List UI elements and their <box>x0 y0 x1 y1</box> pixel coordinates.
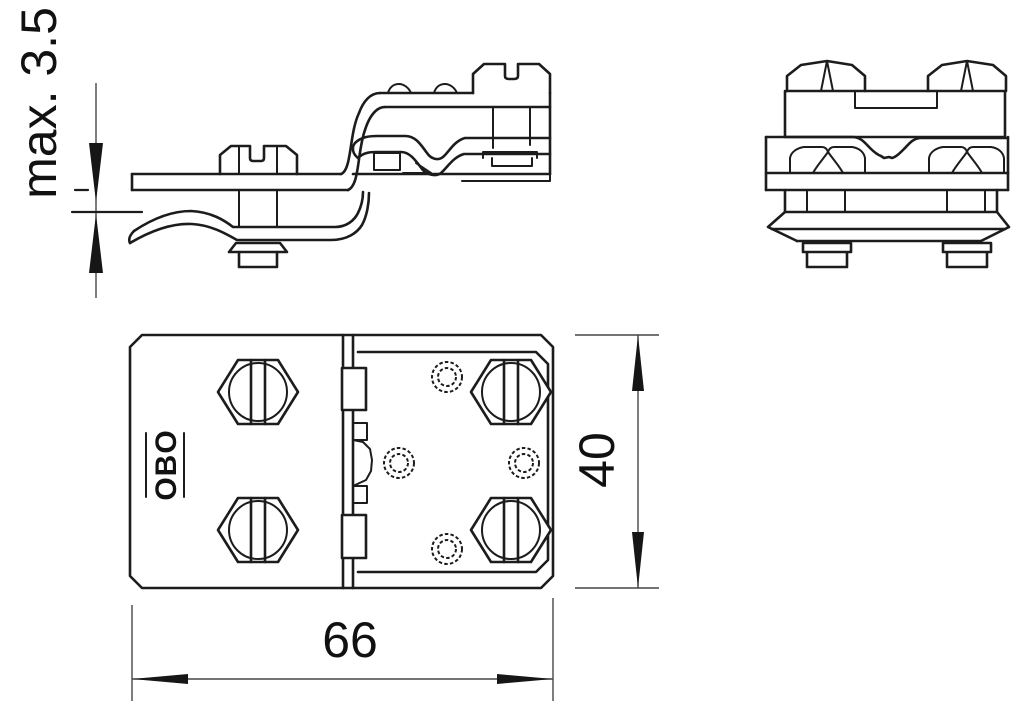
side-clamp-bolt <box>220 146 297 226</box>
seam-center-detail <box>353 423 372 503</box>
knurl-mark <box>432 534 462 564</box>
front-nuts <box>790 147 1004 173</box>
arrowhead-down-icon <box>89 143 103 202</box>
drawing-canvas: OBO 66 40 max. 3.5 <box>0 0 1024 702</box>
hex-bolt <box>471 498 551 562</box>
arrowhead-right-icon <box>497 674 553 684</box>
hex-bolt <box>218 360 298 424</box>
dimension-height-value: 40 <box>569 432 625 488</box>
hex-nut <box>929 147 1004 173</box>
side-top-strap <box>380 84 550 174</box>
side-saddle <box>353 136 550 181</box>
dimension-max-thickness: max. 3.5 <box>11 7 142 298</box>
arrowhead-up-icon <box>89 214 103 273</box>
mounting-tab <box>943 243 991 267</box>
dimension-width: 66 <box>132 598 553 701</box>
top-view: OBO <box>130 335 553 588</box>
dimension-height: 40 <box>569 335 659 588</box>
side-clamp-nut <box>229 243 287 267</box>
brand-logo: OBO <box>146 429 184 500</box>
brand-logo-text: OBO <box>150 429 183 500</box>
seam-tab <box>342 515 366 558</box>
front-body <box>785 91 1005 137</box>
knurl-mark <box>432 362 462 392</box>
bolt-head <box>220 146 297 174</box>
conductor-section <box>374 153 400 170</box>
rivet-dome-icon <box>434 84 457 93</box>
bolt-head <box>473 64 550 93</box>
bolt-shaft <box>239 190 277 226</box>
side-z-bend <box>341 93 385 190</box>
hex-bolt <box>471 360 551 424</box>
seam-tab <box>342 368 366 410</box>
knurl-mark <box>384 448 414 478</box>
side-spring-clip <box>129 192 369 243</box>
front-jaw <box>766 137 1008 190</box>
dimension-width-value: 66 <box>322 612 378 668</box>
knurl-mark <box>509 448 539 478</box>
bolt-shaft <box>493 107 530 148</box>
arrowhead-up-icon <box>632 335 644 391</box>
dimension-max-thickness-value: max. 3.5 <box>11 7 67 199</box>
bolt-shaft <box>807 190 985 212</box>
front-bolt-heads <box>787 61 1006 91</box>
front-clip <box>768 212 1009 241</box>
technical-drawing: OBO 66 40 max. 3.5 <box>0 0 1024 702</box>
side-view <box>129 64 550 267</box>
mounting-tab <box>803 243 851 267</box>
front-view <box>766 61 1009 267</box>
front-tabs <box>803 243 991 267</box>
hex-bolt <box>218 498 298 562</box>
arrowhead-down-icon <box>632 532 644 588</box>
front-lower-block <box>785 190 997 212</box>
rivet-dome-icon <box>388 84 411 93</box>
arrowhead-left-icon <box>132 674 188 684</box>
hex-nut <box>790 147 865 173</box>
side-base-plate <box>132 174 348 190</box>
